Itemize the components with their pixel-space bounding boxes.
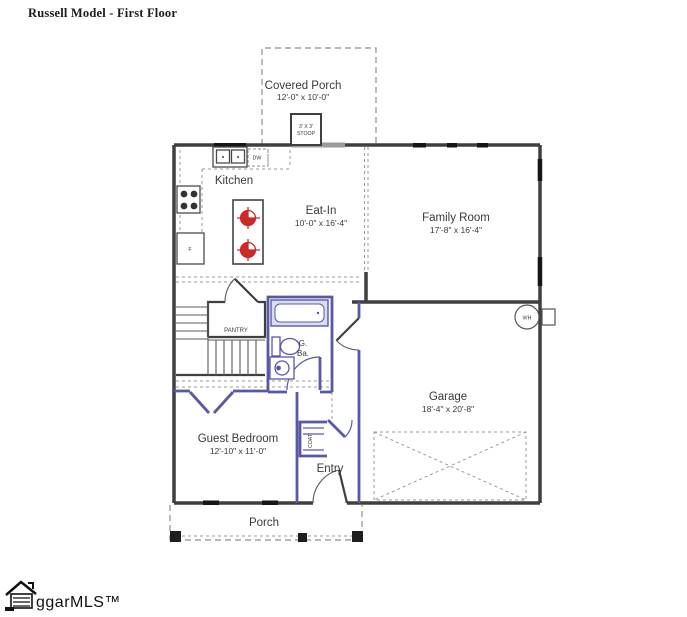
porch-label: Porch [249, 517, 279, 529]
eat-in-dims: 10'-0" x 16'-4" [295, 218, 347, 228]
family-room-dims: 17'-8" x 16'-4" [430, 225, 482, 235]
guest-bedroom-dims: 12'-10" x 11'-0" [210, 446, 266, 456]
water-heater-label: WH [523, 316, 532, 322]
guest-bath-label-line2: Ba. [297, 349, 309, 358]
floor-plan-page: Russell Model - First Floor [0, 0, 687, 617]
guest-bedroom-label: Guest Bedroom [198, 433, 279, 445]
garage-entry-door [336, 318, 359, 350]
coat-closet-door [328, 420, 352, 437]
staircase [176, 302, 265, 375]
utility-box [542, 309, 555, 325]
family-room-label: Family Room [422, 212, 490, 224]
bath-sink [270, 357, 294, 379]
covered-porch-label: Covered Porch [265, 80, 342, 92]
garage-label: Garage [429, 391, 467, 403]
ceiling-break-lines [176, 147, 368, 421]
dishwasher-label: DW [253, 156, 262, 162]
mls-logo: ggarMLS™ [5, 582, 121, 611]
floor-plan-drawing: Covered Porch 12'-0" x 10'-0" 3' X 3' ST… [0, 0, 687, 617]
stoop-label-line2: STOOP [297, 131, 316, 137]
covered-porch-dims: 12'-0" x 10'-0" [277, 92, 329, 102]
garage-door-track [374, 432, 526, 500]
entry-label: Entry [317, 463, 344, 475]
stoop-label-line1: 3' X 3' [299, 124, 313, 130]
guest-bedroom-double-doors [190, 392, 233, 413]
house-logo-icon [5, 582, 36, 611]
toilet [272, 337, 300, 356]
garage-dims: 18'-4" x 20'-8" [422, 404, 474, 414]
range-stove [177, 186, 200, 213]
guest-bath-label-line1: G. [299, 339, 307, 348]
kitchen-label: Kitchen [215, 175, 253, 187]
pantry-label: PANTRY [224, 328, 248, 334]
kitchen-sink [213, 147, 247, 167]
pantry-door [225, 279, 258, 302]
bathtub [271, 300, 328, 326]
refrigerator-label: F [188, 247, 191, 253]
page-title: Russell Model - First Floor [28, 6, 177, 21]
eat-in-label: Eat-In [306, 205, 337, 217]
mls-logo-text: ggarMLS™ [36, 594, 121, 611]
coat-closet-label: COAT [308, 433, 314, 448]
